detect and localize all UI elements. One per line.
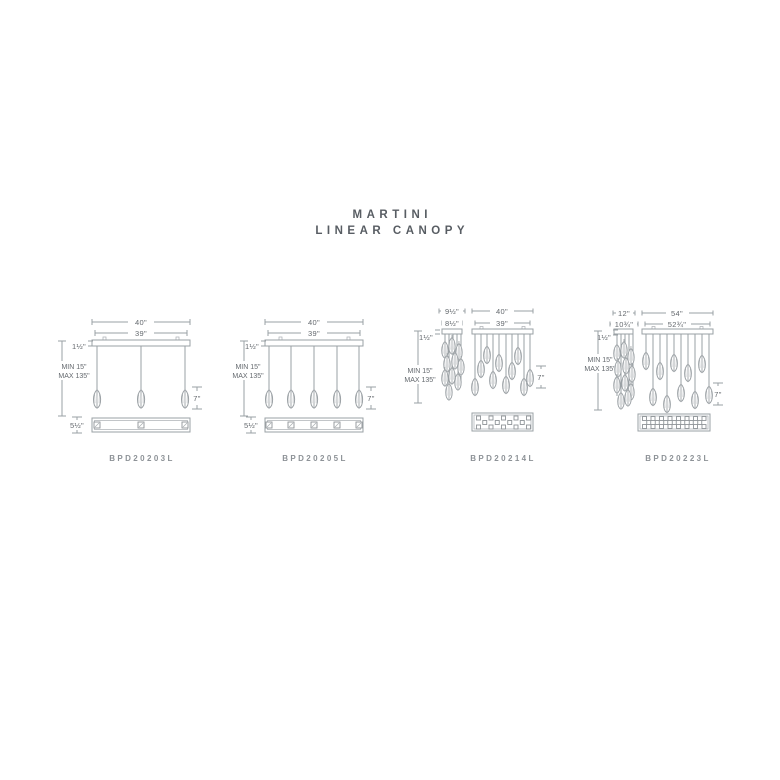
outer-width-dim: 40" [472,305,533,316]
side-outer-width-label: 12" [618,309,630,318]
outer-width-dim: 54" [642,307,713,318]
wires [97,346,185,390]
canopy-depth-dim: 5½" [244,417,258,433]
suspension-min-label: MIN 15" [407,368,433,375]
inner-width-label: 39" [496,319,508,328]
inner-width-label: 39" [308,329,320,338]
inner-width-dim: 39" [268,327,360,338]
side-outer-width-dim: 9½" [439,305,465,316]
canopy-height-dim: 1½" [72,341,93,351]
canopy-depth-label: 5½" [244,421,258,430]
inner-width-label: 52¾" [668,320,686,329]
suspension-range-dim: MIN 15" MAX 135" [51,341,97,416]
suspension-min-label: MIN 15" [61,364,87,371]
canopy-height-label: 1½" [419,333,433,342]
diagram-bpd20203l: 40" 39" 1½" [51,316,202,463]
outer-width-label: 40" [496,307,508,316]
outer-width-label: 40" [308,318,320,327]
canopy-bottom-view [92,418,190,432]
outer-width-dim: 40" [265,316,363,327]
inner-width-label: 39" [135,329,147,338]
canopy-bottom-view [638,414,710,431]
model-number: BPD20205L [282,454,348,463]
diagram-bpd20223l: 12" 10¾" 54" 52¾" [577,307,723,463]
canopy-front-view [265,337,363,346]
pendant-height-label: 7" [714,390,721,399]
suspension-max-label: MAX 135" [58,373,90,380]
diagram-bpd20205l: 40" 39" 1½" [225,316,376,463]
canopy-front-view [92,337,190,346]
pendant-height-dim: 7" [713,383,723,405]
model-number: BPD20223L [645,454,711,463]
pendant-height-label: 7" [367,394,374,403]
canopy-depth-label: 5½" [70,421,84,430]
canopy-height-label: 1½" [245,342,259,351]
suspension-min-label: MIN 15" [235,364,261,371]
outer-width-label: 40" [135,318,147,327]
canopy-side-view [442,329,462,334]
side-outer-width-dim: 12" [613,307,635,318]
side-inner-width-dim: 10¾" [610,318,638,329]
suspension-range-dim: MIN 15" MAX 135" [225,341,271,416]
diagram-bpd20214l: 9½" 8½" 40" 39" [397,305,546,463]
canopy-height-dim: 1½" [245,341,266,351]
spec-sheet-page: MARTINI LINEAR CANOPY 40" [0,0,780,780]
side-inner-width-label: 10¾" [615,320,633,329]
pendants [93,387,188,408]
inner-width-dim: 39" [95,327,187,338]
wires [269,346,359,390]
pendant-height-dim: 7" [366,387,376,409]
side-inner-width-label: 8½" [445,319,459,328]
suspension-min-label: MIN 15" [587,357,613,364]
canopy-depth-dim: 5½" [70,417,84,433]
side-inner-width-dim: 8½" [442,317,462,328]
canopy-bottom-view [472,413,533,431]
model-number: BPD20214L [470,454,536,463]
canopy-height-dim: 1½" [419,330,440,342]
suspension-max-label: MAX 135" [232,373,264,380]
pendant-height-dim: 7" [192,387,202,409]
suspension-max-label: MAX 135" [584,366,616,373]
outer-width-dim: 40" [92,316,190,327]
pendant-height-label: 7" [537,373,544,382]
outer-width-label: 54" [671,309,683,318]
diagram-canvas: 40" 39" 1½" [0,0,780,780]
canopy-height-label: 1½" [597,333,611,342]
suspension-max-label: MAX 135" [404,377,436,384]
side-outer-width-label: 9½" [445,307,459,316]
pendant-height-label: 7" [193,394,200,403]
pendants [265,387,362,408]
canopy-bottom-view [265,418,363,432]
model-number: BPD20203L [109,454,175,463]
pendant-height-dim: 7" [536,366,546,388]
pendant-cluster [614,339,635,409]
canopy-height-label: 1½" [72,342,86,351]
